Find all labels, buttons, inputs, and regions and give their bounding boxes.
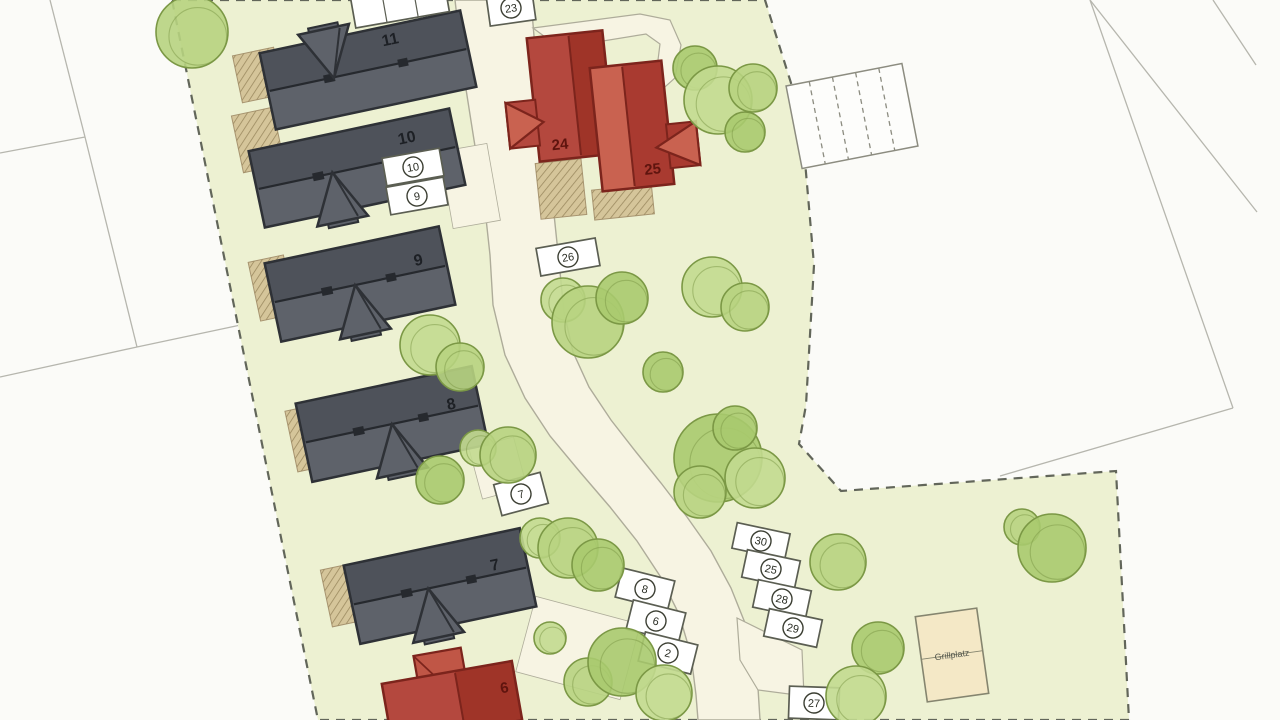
tree (636, 665, 692, 720)
space-number: 10 (406, 161, 420, 175)
space-number: 29 (786, 622, 800, 636)
space-number: 28 (775, 593, 789, 607)
terrace (535, 159, 587, 220)
space-number: 25 (764, 563, 778, 577)
space-number: 27 (808, 698, 821, 710)
space-number: 23 (504, 2, 518, 16)
house-number: 11 (380, 30, 400, 50)
house-number: 10 (396, 128, 417, 148)
shed-grillplatz: Grillplatz (915, 608, 988, 702)
house-number: 25 (643, 160, 661, 179)
tree (826, 666, 886, 720)
space-number: 30 (754, 535, 768, 549)
space-number: 26 (561, 251, 575, 265)
house-number: 24 (551, 136, 570, 155)
site-plan-svg: 111098724256231092678623025282927Grillpl… (0, 0, 1280, 720)
site-plan: 111098724256231092678623025282927Grillpl… (0, 0, 1280, 720)
